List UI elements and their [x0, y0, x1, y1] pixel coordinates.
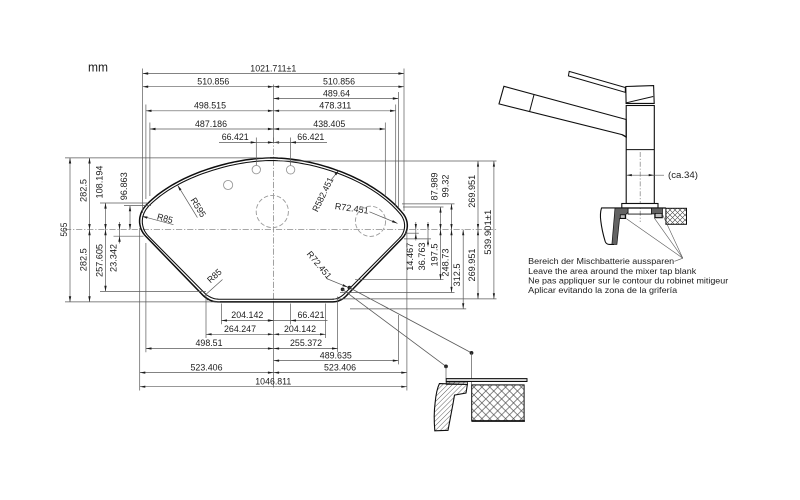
svg-text:66.421: 66.421 — [298, 310, 325, 320]
svg-text:523.406: 523.406 — [324, 362, 356, 372]
svg-text:523.406: 523.406 — [191, 362, 223, 372]
svg-text:Leave the area around the mixe: Leave the area around the mixer tap blan… — [528, 266, 697, 276]
svg-text:Ne pas appliquer sur le contou: Ne pas appliquer sur le contour du robin… — [528, 275, 728, 285]
svg-text:489.64: 489.64 — [323, 88, 350, 98]
svg-text:mm: mm — [88, 61, 108, 75]
svg-text:66.421: 66.421 — [297, 132, 324, 142]
svg-text:Bereich der Mischbatterie auss: Bereich der Mischbatterie aussparen — [528, 256, 674, 266]
svg-text:197.5: 197.5 — [430, 244, 440, 267]
svg-text:282.5: 282.5 — [79, 179, 89, 202]
svg-text:14.467: 14.467 — [405, 243, 415, 271]
svg-text:489.635: 489.635 — [320, 350, 352, 360]
svg-text:498.51: 498.51 — [196, 338, 223, 348]
svg-text:487.186: 487.186 — [195, 119, 227, 129]
svg-text:99.32: 99.32 — [441, 175, 451, 198]
svg-text:255.372: 255.372 — [290, 338, 322, 348]
svg-text:87.989: 87.989 — [430, 173, 440, 201]
svg-text:1046.811: 1046.811 — [255, 376, 291, 386]
svg-text:248.73: 248.73 — [441, 249, 451, 277]
svg-text:96.863: 96.863 — [119, 172, 129, 200]
svg-text:510.856: 510.856 — [197, 76, 229, 86]
svg-text:539.901±1: 539.901±1 — [483, 210, 493, 255]
svg-text:204.142: 204.142 — [284, 324, 316, 334]
svg-text:Aplicar evitando la zona de la: Aplicar evitando la zona de la grifería — [528, 285, 677, 295]
svg-text:282.5: 282.5 — [79, 248, 89, 271]
svg-text:108.194: 108.194 — [95, 166, 105, 199]
svg-text:264.247: 264.247 — [224, 324, 256, 334]
svg-text:565: 565 — [59, 223, 69, 237]
svg-text:510.856: 510.856 — [323, 76, 355, 86]
svg-text:257.605: 257.605 — [95, 244, 105, 277]
svg-text:478.311: 478.311 — [319, 101, 351, 111]
svg-text:438.405: 438.405 — [313, 119, 345, 129]
svg-text:66.421: 66.421 — [222, 132, 249, 142]
svg-text:312.5: 312.5 — [452, 264, 462, 287]
svg-text:1021.711±1: 1021.711±1 — [250, 63, 296, 73]
svg-text:(ca.34): (ca.34) — [668, 170, 698, 180]
svg-text:498.515: 498.515 — [194, 101, 226, 111]
svg-text:23.342: 23.342 — [109, 244, 119, 272]
svg-text:204.142: 204.142 — [231, 310, 263, 320]
svg-text:269.951: 269.951 — [467, 249, 477, 282]
svg-text:269.951: 269.951 — [467, 175, 477, 208]
svg-text:36.763: 36.763 — [417, 243, 427, 271]
